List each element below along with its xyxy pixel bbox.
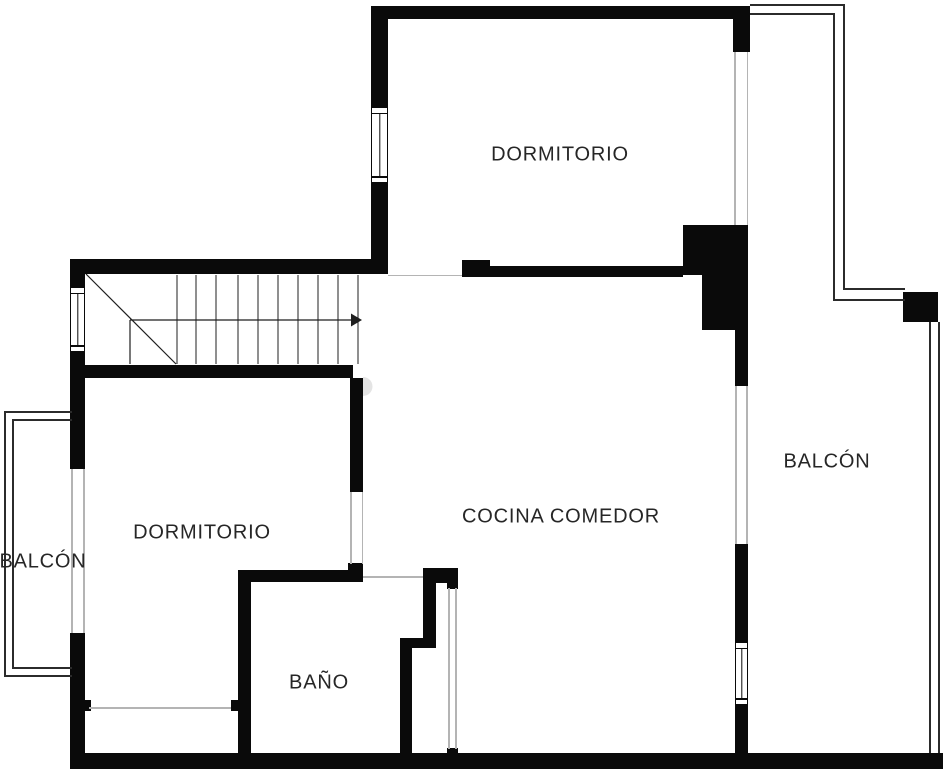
bath-right-opening-b bbox=[455, 588, 457, 749]
bath-left-jamb bbox=[231, 700, 238, 711]
left-wall-lower bbox=[70, 633, 85, 769]
dorm2-door-edge-b bbox=[362, 492, 364, 564]
dorm-top-window-glass bbox=[379, 114, 380, 176]
dorm-top-window-window-icon bbox=[371, 107, 388, 183]
left-balcony-inner-bottom bbox=[12, 667, 72, 669]
dorm-top-door-sill bbox=[388, 275, 462, 277]
cocina-balcony-opening-a bbox=[735, 386, 737, 544]
right-wall-window-window-icon bbox=[735, 642, 748, 705]
shaft-block-a bbox=[683, 225, 748, 275]
cocina-top-wall-bump bbox=[462, 260, 490, 267]
stair-line-0 bbox=[86, 274, 176, 364]
stairs-svg bbox=[0, 0, 946, 774]
right-balcony-inner-right bbox=[833, 13, 835, 301]
left-balcony-outer-left bbox=[4, 411, 6, 677]
door-swing-arc bbox=[363, 377, 373, 396]
right-wall-lower bbox=[735, 705, 748, 753]
floorplan-canvas: DORMITORIODORMITORIOCOCINA COMEDORBAÑOBA… bbox=[0, 0, 946, 774]
bath-right-wall-a bbox=[423, 583, 436, 638]
left-wall-upper bbox=[70, 259, 85, 287]
stair-top-wall bbox=[70, 259, 388, 274]
closet-line bbox=[89, 707, 231, 709]
bottom-wall bbox=[70, 753, 943, 769]
dorm2-wall-upper bbox=[350, 378, 363, 492]
right-balcony-outer-right bbox=[843, 4, 845, 290]
right-balcony-outer-jog bbox=[843, 288, 905, 290]
left-balcony-inner-left bbox=[12, 419, 14, 669]
bath-right-opening-a bbox=[448, 588, 450, 749]
room-label-bano: BAÑO bbox=[289, 672, 349, 695]
cocina-top-wall bbox=[462, 266, 683, 277]
right-wall-mid bbox=[735, 544, 748, 642]
room-label-cocina-comedor: COCINA COMEDOR bbox=[462, 506, 660, 529]
bath-left-wall bbox=[238, 570, 251, 769]
top-right-stub bbox=[733, 19, 750, 52]
left-balcony-outer-bottom bbox=[4, 675, 72, 677]
dorm-top-balcony-edge-b bbox=[747, 52, 749, 225]
dorm2-left-jamb bbox=[85, 700, 91, 711]
left-wall-window-glass bbox=[77, 294, 78, 345]
dorm-top-left-wall-upper bbox=[371, 6, 388, 107]
bath-right-wall-b bbox=[400, 648, 412, 753]
stair-bottom-wall bbox=[70, 365, 353, 378]
right-balcony-outer-top bbox=[750, 4, 845, 6]
dorm-top-balcony-edge-a bbox=[734, 52, 736, 225]
right-balcony-lower-inner bbox=[929, 322, 931, 753]
balcony-pillar bbox=[903, 292, 938, 322]
bath-door-sill bbox=[363, 576, 423, 578]
dorm2-door-edge-a bbox=[350, 492, 352, 564]
bath-right-bar bbox=[423, 568, 458, 583]
right-balcony-inner-top bbox=[750, 13, 835, 15]
cocina-balcony-opening-b bbox=[746, 386, 748, 544]
left-balcony-inner-top bbox=[12, 419, 72, 421]
right-wall-window-glass bbox=[741, 649, 742, 698]
room-label-balcon-left: BALCÓN bbox=[0, 551, 87, 574]
bath-right-step bbox=[400, 638, 436, 648]
bath-top-wall bbox=[238, 570, 363, 582]
shaft-block-b bbox=[702, 275, 748, 330]
right-balcony-lower-outer bbox=[938, 322, 940, 753]
shaft-block-c bbox=[735, 330, 748, 386]
left-balcony-outer-top bbox=[4, 411, 72, 413]
room-label-dormitorio-left: DORMITORIO bbox=[133, 522, 271, 545]
room-label-balcon-right: BALCÓN bbox=[783, 451, 870, 474]
right-balcony-inner-jog bbox=[833, 299, 905, 301]
left-wall-window-window-icon bbox=[70, 287, 85, 352]
top-wall bbox=[371, 6, 750, 19]
stair-direction-arrow-icon bbox=[351, 314, 362, 327]
room-label-dormitorio-top: DORMITORIO bbox=[491, 144, 629, 167]
